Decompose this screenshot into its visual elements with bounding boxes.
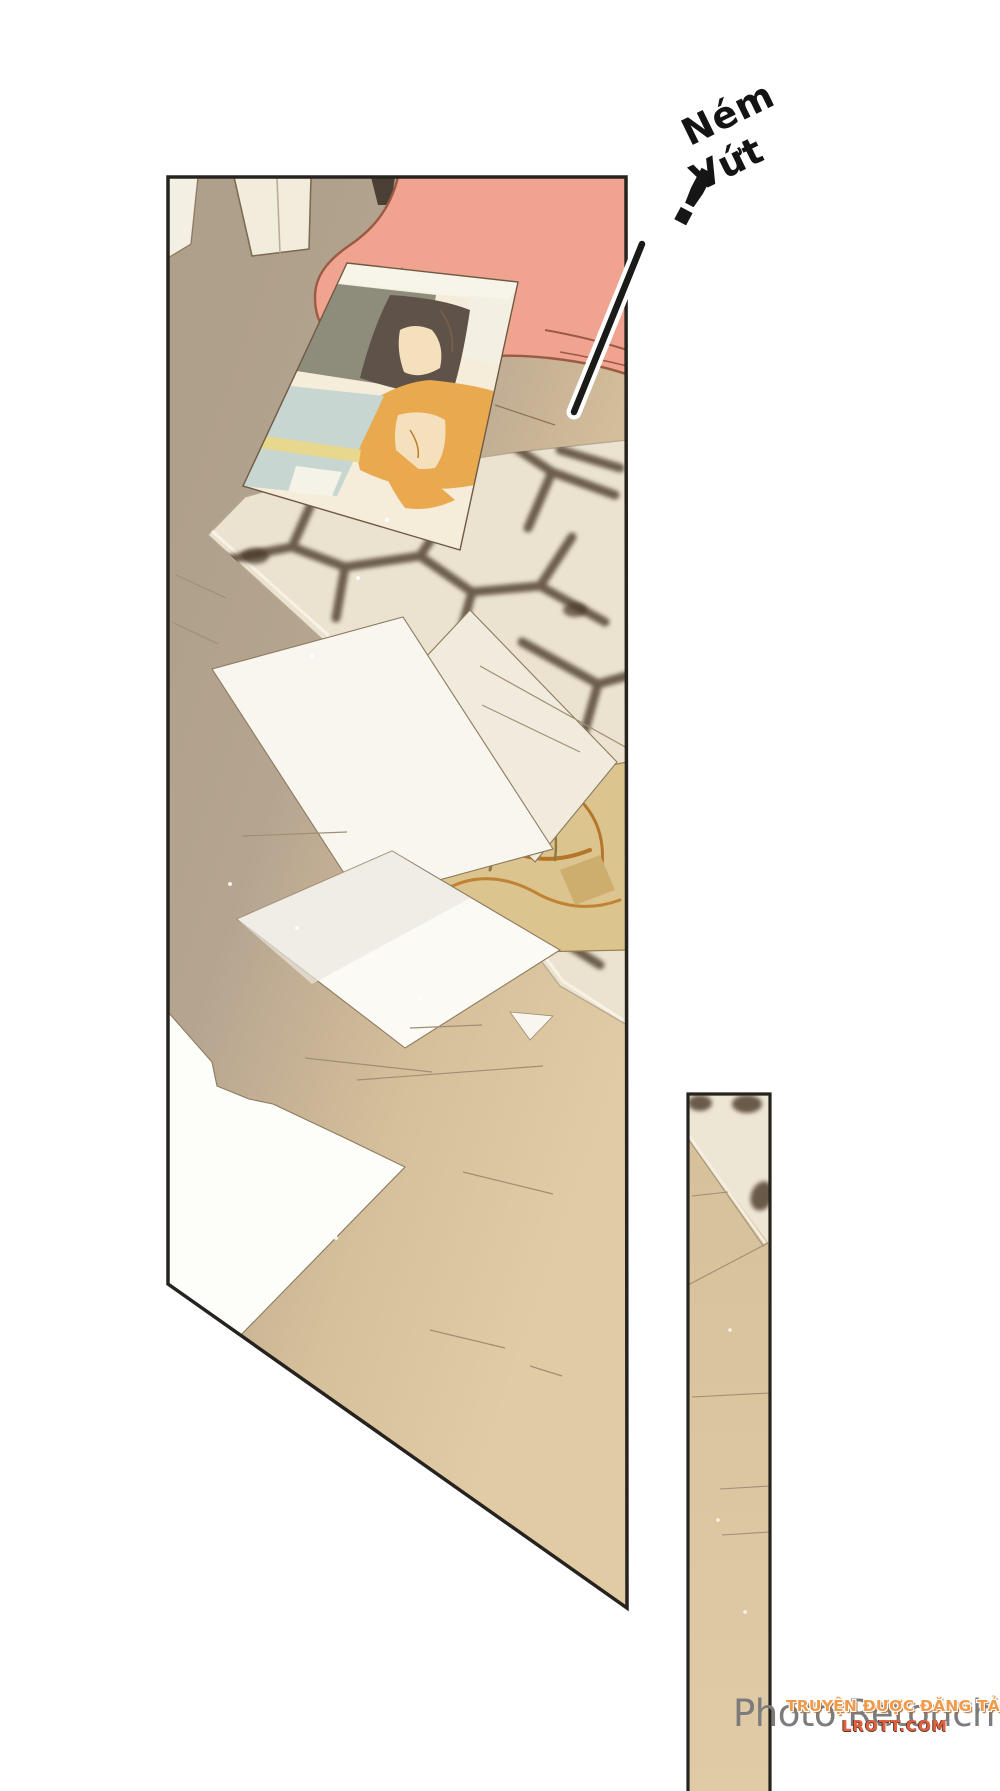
narrow-panel-content xyxy=(688,1094,777,1791)
comic-artwork xyxy=(0,0,1000,1791)
watermark-site-banner: TRUYỆN ĐƯỢC ĐĂNG TẢI TẠI xyxy=(786,1697,1000,1715)
watermark-site-url: LROTT.COM xyxy=(842,1717,948,1735)
main-panel-content xyxy=(160,177,627,1608)
comic-page: Ném Vứt ! Photo Retouch TRUYỆN ĐƯỢC ĐĂNG… xyxy=(0,0,1000,1791)
